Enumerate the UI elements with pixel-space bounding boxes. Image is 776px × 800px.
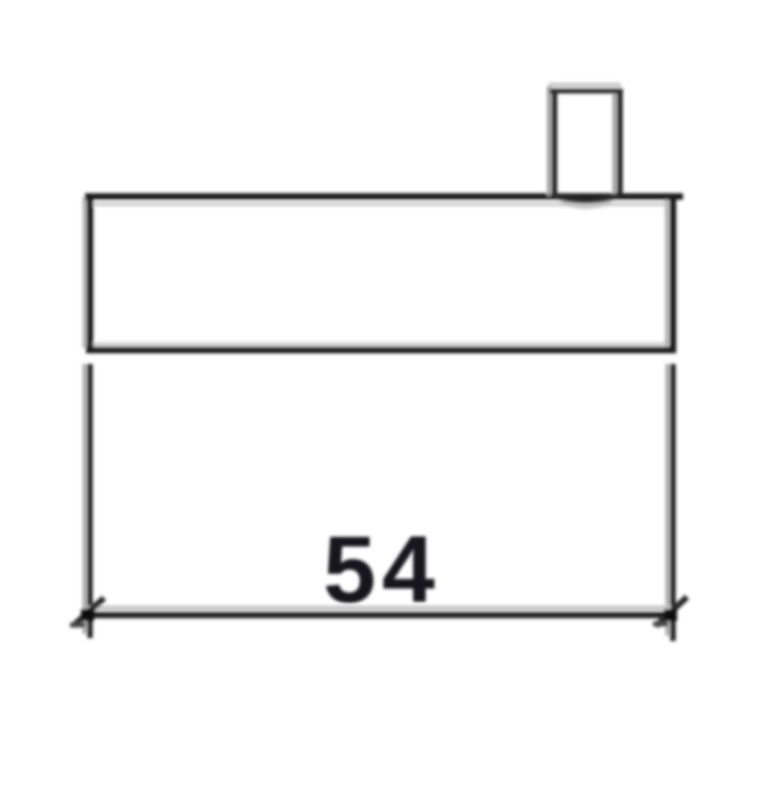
svg-text:54: 54 [323, 517, 441, 623]
